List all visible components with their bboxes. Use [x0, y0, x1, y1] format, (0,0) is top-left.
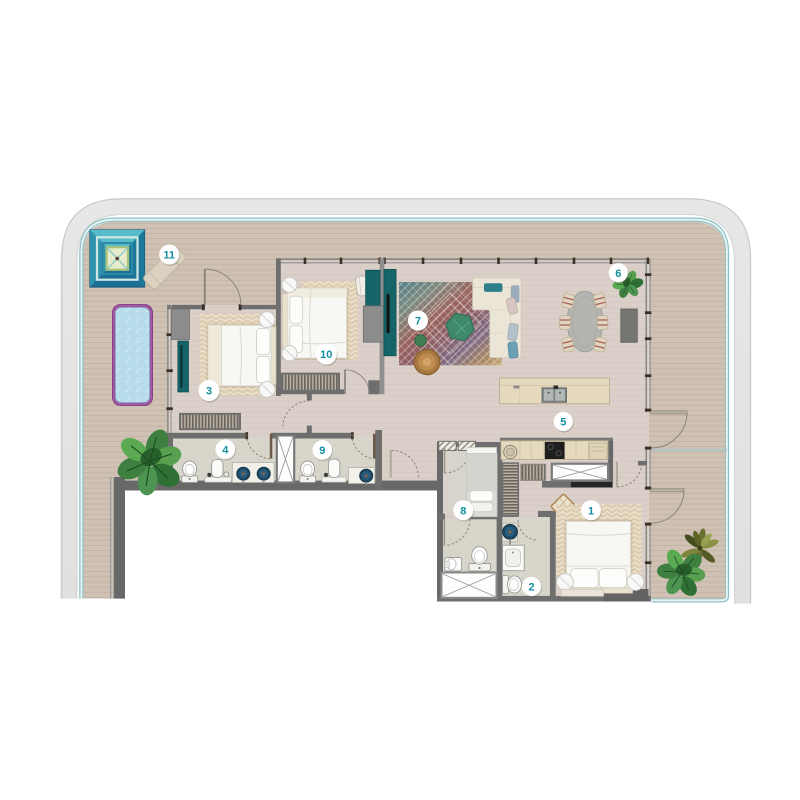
svg-text:4: 4 [222, 444, 229, 456]
svg-text:7: 7 [415, 316, 421, 328]
svg-text:2: 2 [528, 582, 534, 594]
svg-text:6: 6 [615, 268, 621, 280]
svg-text:5: 5 [560, 417, 566, 429]
svg-text:11: 11 [163, 250, 175, 262]
svg-text:3: 3 [206, 386, 212, 398]
svg-text:10: 10 [320, 349, 332, 361]
svg-text:1: 1 [588, 505, 594, 517]
svg-text:9: 9 [319, 445, 325, 457]
svg-text:8: 8 [460, 505, 466, 517]
